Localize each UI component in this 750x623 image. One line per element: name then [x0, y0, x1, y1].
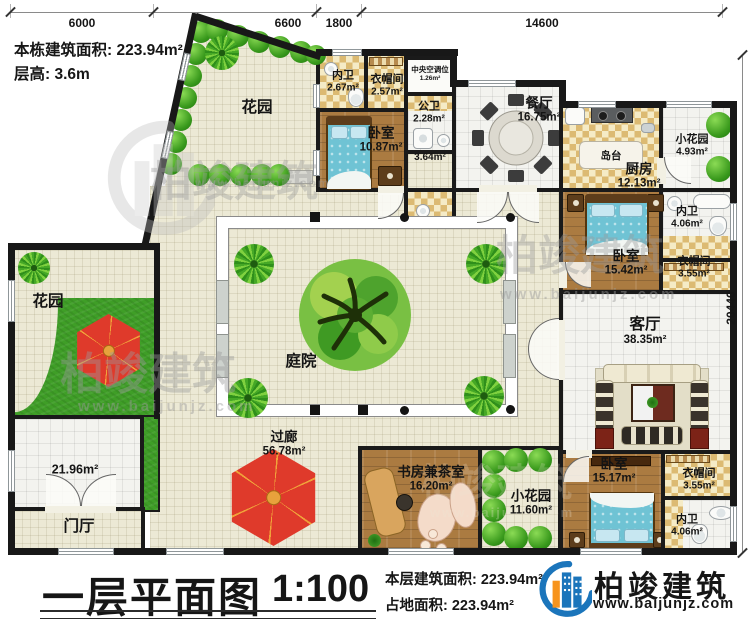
- bush: [706, 112, 732, 138]
- courtyard-pilaster: [216, 334, 229, 378]
- cabinet: [378, 166, 402, 186]
- nightstand: [647, 194, 664, 212]
- window: [730, 203, 737, 241]
- coffee-table: [631, 384, 675, 422]
- wall-garden-left-top: [8, 243, 158, 250]
- room-label-bath-2: 内卫4.06m²: [671, 206, 703, 231]
- palm-tree-icon: [205, 36, 239, 70]
- floor-height-note: 层高: 3.6m: [14, 62, 90, 84]
- floor-plan-canvas: 岛台: [0, 0, 750, 623]
- plan-scale: 1:100: [272, 568, 369, 611]
- bed: [589, 492, 655, 552]
- bush: [209, 164, 231, 186]
- bush: [504, 448, 528, 472]
- dimension-line-top: [10, 12, 723, 13]
- room-label-closet-3: 衣帽间3.55m²: [683, 468, 716, 493]
- palm-tree-icon: [464, 376, 504, 416]
- room-label-courtyard: 庭院: [285, 353, 316, 371]
- room-label-small-garden-s: 小花园11.60m²: [510, 488, 552, 517]
- window: [388, 548, 454, 555]
- pillow: [331, 126, 349, 139]
- room-label-kitchen: 厨房12.13m²: [618, 161, 661, 190]
- palm-tree-icon: [466, 244, 506, 284]
- room-label-hallway: 3.64m²: [414, 152, 446, 164]
- courtyard-pilaster: [216, 280, 229, 324]
- burner: [616, 111, 626, 121]
- window: [578, 101, 616, 108]
- floor-area-note: 本层建筑面积: 223.94m²: [385, 568, 543, 589]
- end-table: [690, 428, 709, 449]
- headboard: [585, 194, 649, 203]
- bush: [528, 526, 552, 550]
- fridge-icon: [565, 107, 585, 125]
- room-study: [358, 446, 482, 552]
- bush: [706, 156, 732, 182]
- bush: [230, 164, 252, 186]
- room-label-guolang: 过廊56.78m²: [263, 429, 306, 458]
- room-label-sideroom: 21.96m²: [52, 463, 99, 478]
- column-marker: [506, 405, 515, 414]
- palm-tree-icon: [234, 244, 274, 284]
- plant-icon: [368, 534, 381, 547]
- dim-label-6000: 6000: [69, 16, 96, 30]
- window: [8, 450, 15, 492]
- wall-right: [730, 101, 737, 555]
- bush: [504, 526, 528, 550]
- bush: [482, 474, 506, 498]
- window: [332, 49, 362, 56]
- burner: [598, 111, 608, 121]
- column-marker: [506, 213, 515, 222]
- room-label-closet-1: 衣帽间2.57m²: [371, 74, 404, 99]
- sofa-back: [603, 364, 701, 383]
- room-label-bath-1: 内卫2.67m²: [327, 70, 359, 95]
- column-marker: [310, 405, 320, 415]
- column-marker: [358, 405, 368, 415]
- closet-shelf: [369, 57, 403, 66]
- bush: [528, 448, 552, 472]
- window: [730, 506, 737, 542]
- bed: [585, 194, 649, 256]
- bush: [188, 164, 210, 186]
- kitchen-sink-icon: [641, 123, 655, 133]
- dim-label-14600: 14600: [525, 16, 558, 30]
- room-label-living: 客厅38.35m²: [624, 316, 667, 348]
- end-table: [595, 428, 614, 449]
- toilet-icon: [709, 216, 727, 236]
- courtyard-pilaster: [503, 334, 516, 378]
- building-area-note: 本栋建筑面积: 223.94m²: [14, 38, 183, 60]
- pillow: [619, 204, 644, 217]
- bush: [268, 164, 290, 186]
- room-label-hvac: 中央空调位1.26m²: [411, 66, 449, 83]
- room-label-study: 书房兼茶室16.20m²: [397, 464, 465, 493]
- land-area-note: 占地面积: 223.94m²: [385, 594, 514, 615]
- window: [313, 84, 320, 108]
- room-label-garden-left: 花园: [32, 293, 63, 311]
- column-marker: [310, 212, 320, 222]
- palm-tree-icon: [18, 252, 50, 284]
- island-label: 岛台: [601, 148, 622, 163]
- nightstand: [569, 532, 585, 548]
- dim-label-1800: 1800: [326, 16, 353, 30]
- umbrella-hub: [266, 490, 282, 506]
- window: [666, 101, 712, 108]
- decor-ball: [428, 529, 438, 539]
- bush: [482, 498, 506, 522]
- sink-icon: [437, 134, 450, 147]
- room-label-bath-public: 公卫2.28m²: [413, 101, 445, 126]
- umbrella-hub: [102, 344, 114, 356]
- window: [313, 150, 320, 176]
- brand-logo-icon: [538, 560, 592, 618]
- plant-icon: [647, 397, 658, 408]
- nightstand: [567, 194, 584, 212]
- window: [580, 548, 642, 555]
- room-label-small-garden-ne: 小花园4.93m²: [676, 134, 709, 159]
- stove-icon: [591, 107, 633, 123]
- wall-garden-left-right: [154, 243, 160, 419]
- room-label-menting: 门厅: [63, 518, 94, 536]
- window: [468, 80, 516, 87]
- dim-label-6600: 6600: [275, 16, 302, 30]
- column-marker: [400, 406, 409, 415]
- room-label-bedroom-1: 卧室10.87m²: [360, 125, 403, 154]
- bush: [482, 450, 506, 474]
- courtyard-pilaster: [503, 280, 516, 324]
- washer-icon: [413, 128, 433, 149]
- window: [8, 280, 15, 322]
- window: [58, 548, 114, 555]
- sheet-fold: [327, 171, 371, 189]
- room-label-closet-2: 衣帽间3.55m²: [678, 256, 711, 281]
- room-label-bedroom-3: 卧室15.17m²: [593, 456, 636, 485]
- pillow: [591, 204, 616, 217]
- room-label-bedroom-2: 卧室15.42m²: [605, 248, 648, 277]
- palm-tree-icon: [228, 378, 268, 418]
- pillow: [624, 529, 650, 542]
- dim-label-20440: 20440: [724, 291, 738, 324]
- title-underline: [40, 610, 376, 619]
- headboard: [326, 116, 372, 125]
- brand-url: www.baijunjz.com: [593, 596, 734, 612]
- sofa-bench: [621, 426, 683, 445]
- room-label-dining: 餐厅16.75m²: [518, 95, 561, 124]
- column-marker: [400, 213, 409, 222]
- sheet-fold: [590, 493, 654, 508]
- room-living: [559, 290, 737, 454]
- desk-chair: [396, 494, 413, 511]
- dimension-line-right: [742, 55, 743, 553]
- bush: [482, 522, 506, 546]
- room-label-garden-top: 花园: [241, 99, 272, 117]
- room-label-bath-3: 内卫4.06m²: [671, 514, 703, 539]
- window: [166, 548, 224, 555]
- pillow: [595, 529, 621, 542]
- closet-shelf: [666, 455, 710, 463]
